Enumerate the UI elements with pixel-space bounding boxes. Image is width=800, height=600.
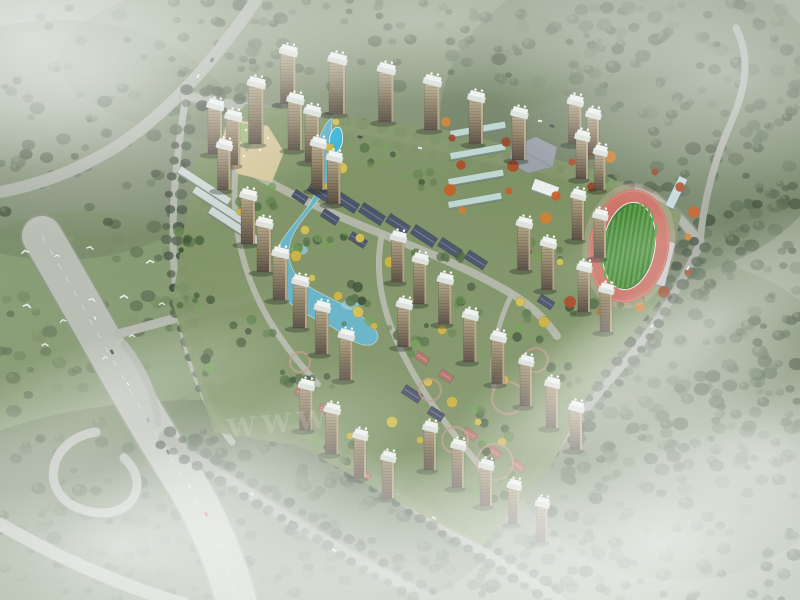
masterplan-aerial-scene: WWW [0,0,800,600]
atmospheric-haze [0,0,800,600]
aerial-rendering-viewport: WWW [0,0,800,600]
haze-overlay [0,0,800,600]
